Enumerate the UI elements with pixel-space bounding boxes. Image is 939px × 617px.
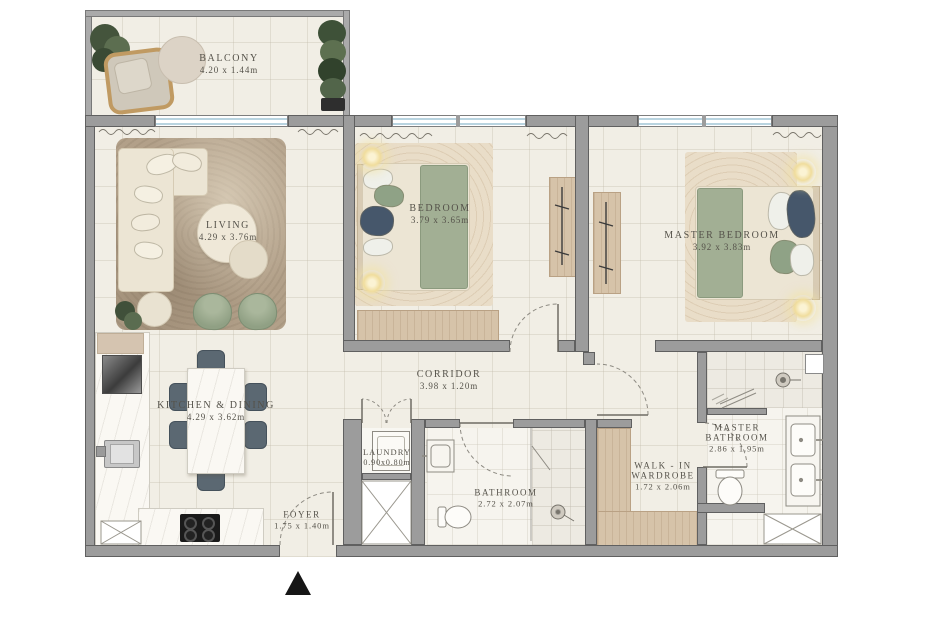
- room-label-living: LIVING 4.29 x 3.76m: [199, 220, 257, 242]
- room-label-foyer: FOYER 1.75 x 1.40m: [274, 510, 330, 531]
- burner-icon: [184, 529, 197, 542]
- entrance-arrow-icon: [285, 571, 311, 595]
- shower-floor: [532, 428, 585, 545]
- room-label-laundry: LAUNDRY 0.90x0.80m: [363, 447, 411, 467]
- side-table: [229, 240, 268, 279]
- cooktop: [180, 514, 220, 542]
- wall-suite-stub: [583, 352, 595, 365]
- wall-master-bottom: [655, 340, 822, 352]
- room-label-master-bathroom: MASTER BATHROOM 2.86 x 1.95m: [705, 423, 768, 454]
- room-label-balcony: BALCONY 4.20 x 1.44m: [199, 53, 259, 75]
- room-label-walkin: WALK - IN WARDROBE 1.72 x 2.06m: [631, 461, 694, 492]
- room-label-kitchen: KITCHEN & DINING 4.29 x 3.62m: [157, 400, 275, 422]
- plant-icon: [320, 78, 346, 100]
- laundry-shaft-floor: [362, 480, 411, 545]
- wall-corridor: [513, 419, 585, 428]
- sliding-door-window: [155, 115, 288, 127]
- walkin-wardrobe-wood: [597, 511, 699, 547]
- bedside-lamp: [790, 159, 816, 185]
- master-wardrobe: [593, 192, 621, 294]
- window-mullion: [702, 115, 706, 127]
- room-label-corridor: CORRIDOR 3.98 x 1.20m: [417, 369, 481, 391]
- faucet-icon: [96, 446, 106, 457]
- wall-bedroom-bottom: [343, 340, 510, 352]
- wall-shower-divider: [707, 408, 767, 415]
- balcony-wall-top: [85, 10, 350, 17]
- wall-top: [772, 115, 838, 127]
- walkin-wardrobe-wood: [597, 428, 631, 516]
- wall-top: [288, 115, 392, 127]
- wall-laundry-bathroom: [411, 419, 425, 545]
- kitchen-cabinet: [97, 333, 144, 354]
- wall-corridor: [425, 419, 460, 428]
- bedroom-bench: [357, 310, 499, 342]
- wall-bottom: [336, 545, 838, 557]
- bed-green-throw: [420, 165, 468, 289]
- wall-door-stub: [558, 340, 575, 352]
- wall-bottom: [85, 545, 280, 557]
- bed-pillow: [789, 243, 815, 277]
- bedside-lamp: [359, 144, 385, 170]
- room-label-bathroom: BATHROOM 2.72 x 2.07m: [474, 488, 537, 509]
- planter-box: [321, 98, 345, 111]
- window-mullion: [456, 115, 460, 127]
- room-label-bedroom: BEDROOM 3.79 x 3.65m: [409, 203, 470, 225]
- wall-top: [85, 115, 155, 127]
- room-label-master-bedroom: MASTER BEDROOM 3.92 x 3.83m: [664, 230, 779, 252]
- pouf: [137, 292, 172, 327]
- sink-basin: [110, 444, 134, 464]
- burner-icon: [202, 529, 215, 542]
- wall-living-bedroom: [343, 115, 355, 352]
- shower-niche: [805, 354, 824, 374]
- wall-laundry-divider: [362, 473, 411, 480]
- floor-plan: BALCONY 4.20 x 1.44m LIVING 4.29 x 3.76m…: [0, 0, 939, 617]
- bedside-lamp: [359, 270, 385, 296]
- wall-foyer-laundry: [343, 419, 362, 545]
- wall-right: [822, 115, 838, 557]
- wall-masterbath-left: [697, 352, 707, 423]
- wall-bathroom-walkin: [585, 419, 597, 545]
- armchair: [237, 292, 278, 331]
- wall-masterbath-stub: [697, 503, 765, 513]
- wall-bedroom-master: [575, 115, 589, 352]
- dining-chair: [244, 421, 267, 449]
- bedside-lamp: [790, 295, 816, 321]
- balcony-wall-left: [85, 10, 92, 117]
- plant-icon: [124, 312, 142, 330]
- wall-left: [85, 115, 95, 557]
- bedroom-wardrobe: [549, 177, 577, 277]
- wall-walkin-top: [597, 419, 632, 428]
- fridge: [102, 355, 142, 394]
